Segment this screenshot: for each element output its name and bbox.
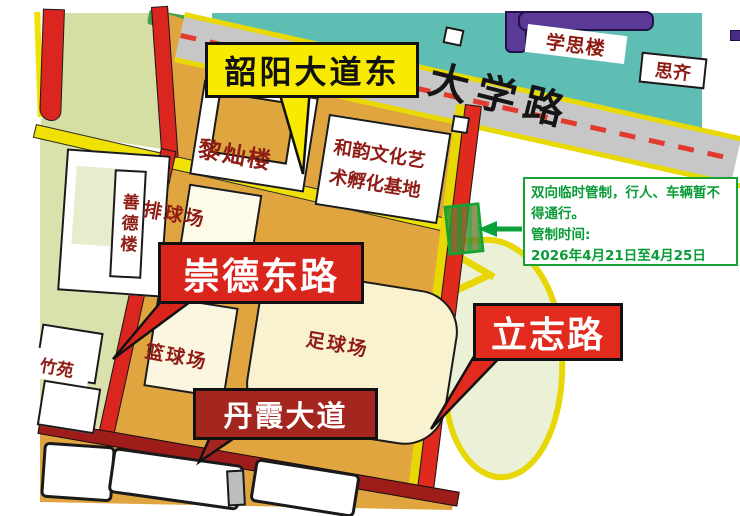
control-note-line3: 管制时间:: [531, 225, 730, 246]
arrow-head-icon: [478, 221, 497, 237]
campus-map-canvas: 大学路 善德楼 黎灿楼 和韵文化艺 术孵化基地 排球场 篮球场 足球场 竹苑 学…: [0, 0, 740, 516]
traffic-control-note: 双向临时管制，行人、车辆暂不 得通行。 管制时间: 2026年4月21日至4月2…: [523, 177, 738, 266]
control-note-line4: 2026年4月21日至4月25日: [531, 246, 730, 267]
control-note-line2: 得通行。: [531, 204, 730, 225]
control-note-line1: 双向临时管制，行人、车辆暂不: [531, 183, 730, 204]
